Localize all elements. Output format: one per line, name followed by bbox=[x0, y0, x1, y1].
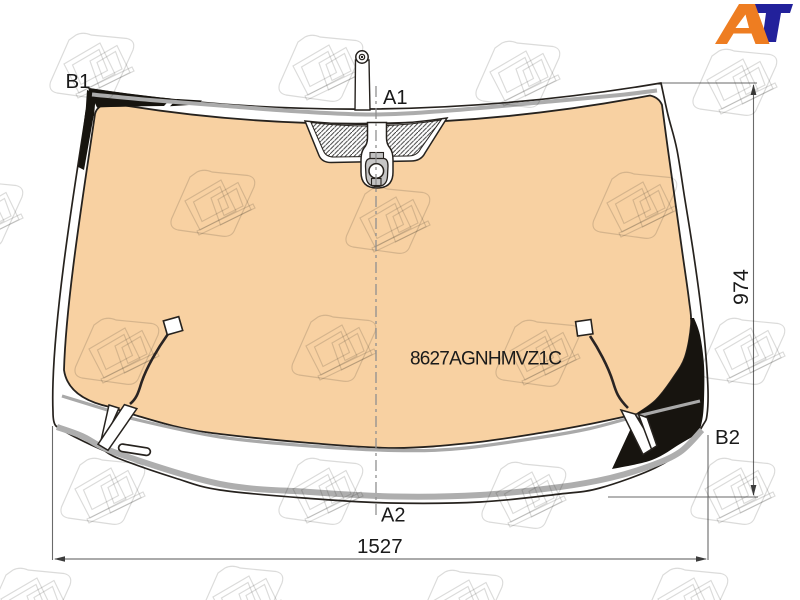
svg-text:B2: B2 bbox=[715, 426, 740, 449]
svg-text:1527: 1527 bbox=[357, 535, 403, 558]
svg-text:B1: B1 bbox=[66, 70, 91, 93]
svg-text:A2: A2 bbox=[381, 505, 405, 527]
svg-text:A1: A1 bbox=[383, 87, 407, 109]
svg-text:8627AGNHMVZ1C: 8627AGNHMVZ1C bbox=[410, 349, 561, 370]
svg-text:974: 974 bbox=[729, 269, 753, 305]
